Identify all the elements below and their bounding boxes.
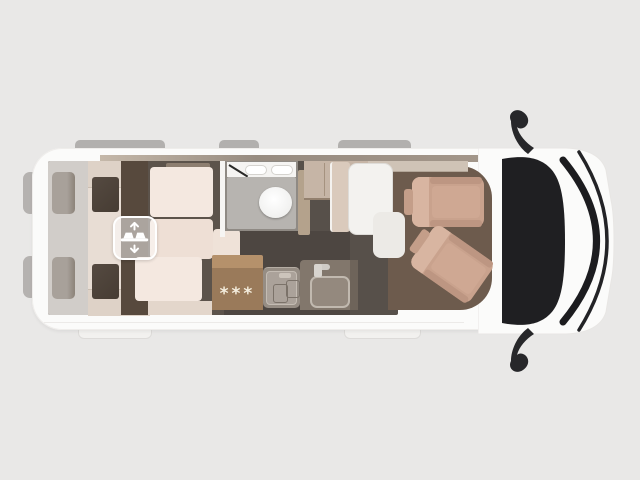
- side-mirror-upper-icon: [510, 110, 534, 154]
- dinette-bench: [330, 162, 350, 232]
- stove-glass-lid: [266, 271, 297, 305]
- headrest: [404, 189, 413, 215]
- bed-foot-band: [148, 301, 212, 315]
- cabinet-seam: [324, 163, 325, 196]
- sink-basin-icon: [310, 276, 350, 308]
- washbasin-2: [271, 165, 293, 175]
- rear-door-panel-lower: [52, 257, 75, 299]
- floorplan-image: ***: [0, 0, 640, 480]
- seats-convert-to-bed-icon: [115, 218, 154, 257]
- seat-glyph-right: [135, 233, 145, 239]
- cab-front: [478, 110, 640, 372]
- washbasin-1: [245, 165, 267, 175]
- rear-door-panel-upper: [52, 172, 75, 214]
- bathroom: [220, 161, 310, 237]
- fridge-top-face: [212, 255, 263, 268]
- windshield: [502, 157, 565, 325]
- seat-backrest: [412, 177, 429, 227]
- headrest-cushion-lower: [92, 264, 119, 299]
- rear-storage-area: [48, 161, 88, 315]
- fridge-front-face: ***: [212, 268, 263, 310]
- driver-seat-swiveled: [412, 177, 484, 227]
- faucet-spout: [314, 264, 322, 277]
- fridge-cabinet: ***: [212, 255, 263, 310]
- armrest: [430, 177, 482, 184]
- mattress-cushion-1: [150, 167, 213, 217]
- sink-unit: [300, 260, 358, 310]
- table-extension: [373, 212, 405, 258]
- body-seam-line: [44, 322, 464, 323]
- mattress-cushion-2: [150, 219, 213, 259]
- bathroom-room: [225, 161, 298, 231]
- seat-cushion: [432, 186, 480, 218]
- stove: [263, 267, 300, 308]
- seat-base-bar: [121, 238, 148, 241]
- stove-knob: [279, 273, 291, 278]
- fridge-star-rating: ***: [220, 286, 256, 303]
- side-mirror-lower-icon: [510, 328, 534, 372]
- burner-2-icon: [286, 280, 300, 298]
- seat-glyph-left: [123, 233, 133, 239]
- toilet-icon: [259, 187, 292, 218]
- mattress-cushion-3: [135, 257, 202, 301]
- counter-edge: [350, 260, 358, 310]
- seat-bed-conversion-badge: [113, 216, 157, 260]
- headrest-cushion-upper: [92, 177, 119, 212]
